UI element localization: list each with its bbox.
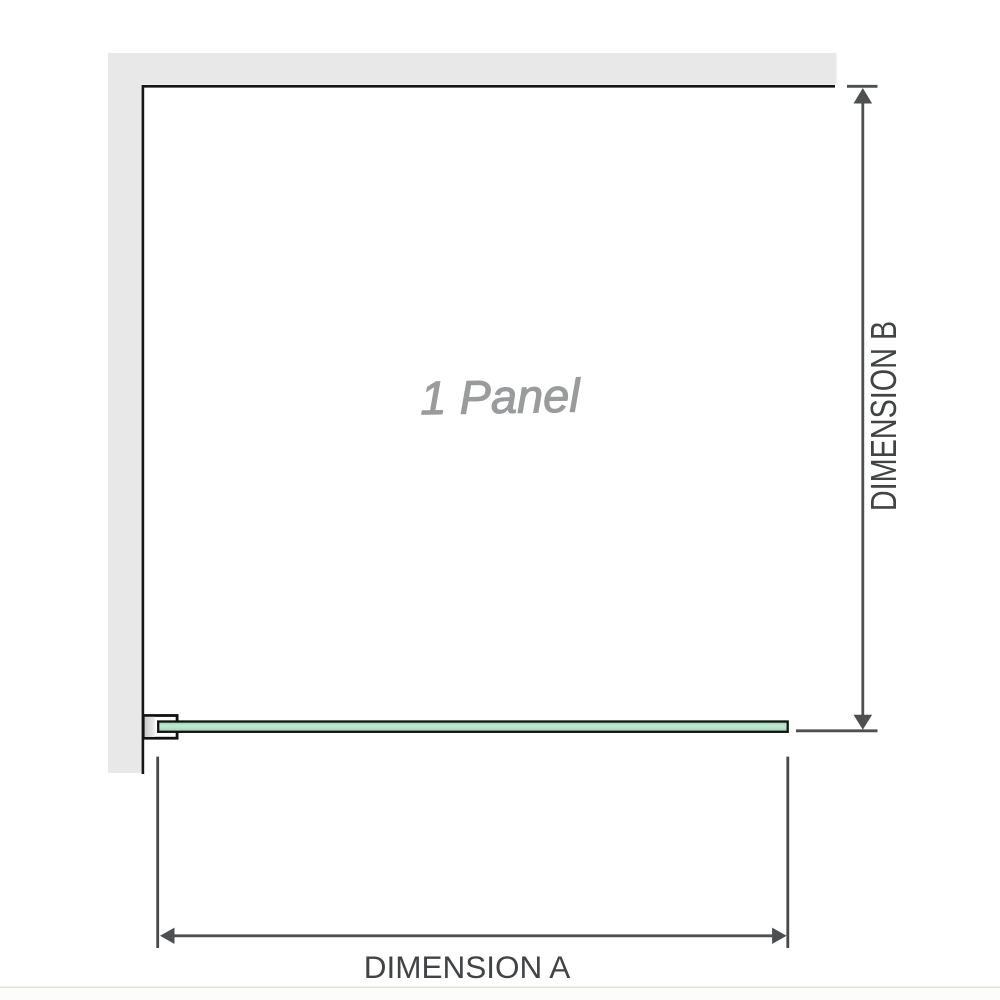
svg-text:DIMENSION A: DIMENSION A [364,949,571,985]
svg-text:DIMENSION B: DIMENSION B [863,321,904,511]
svg-text:1 Panel: 1 Panel [420,369,582,425]
